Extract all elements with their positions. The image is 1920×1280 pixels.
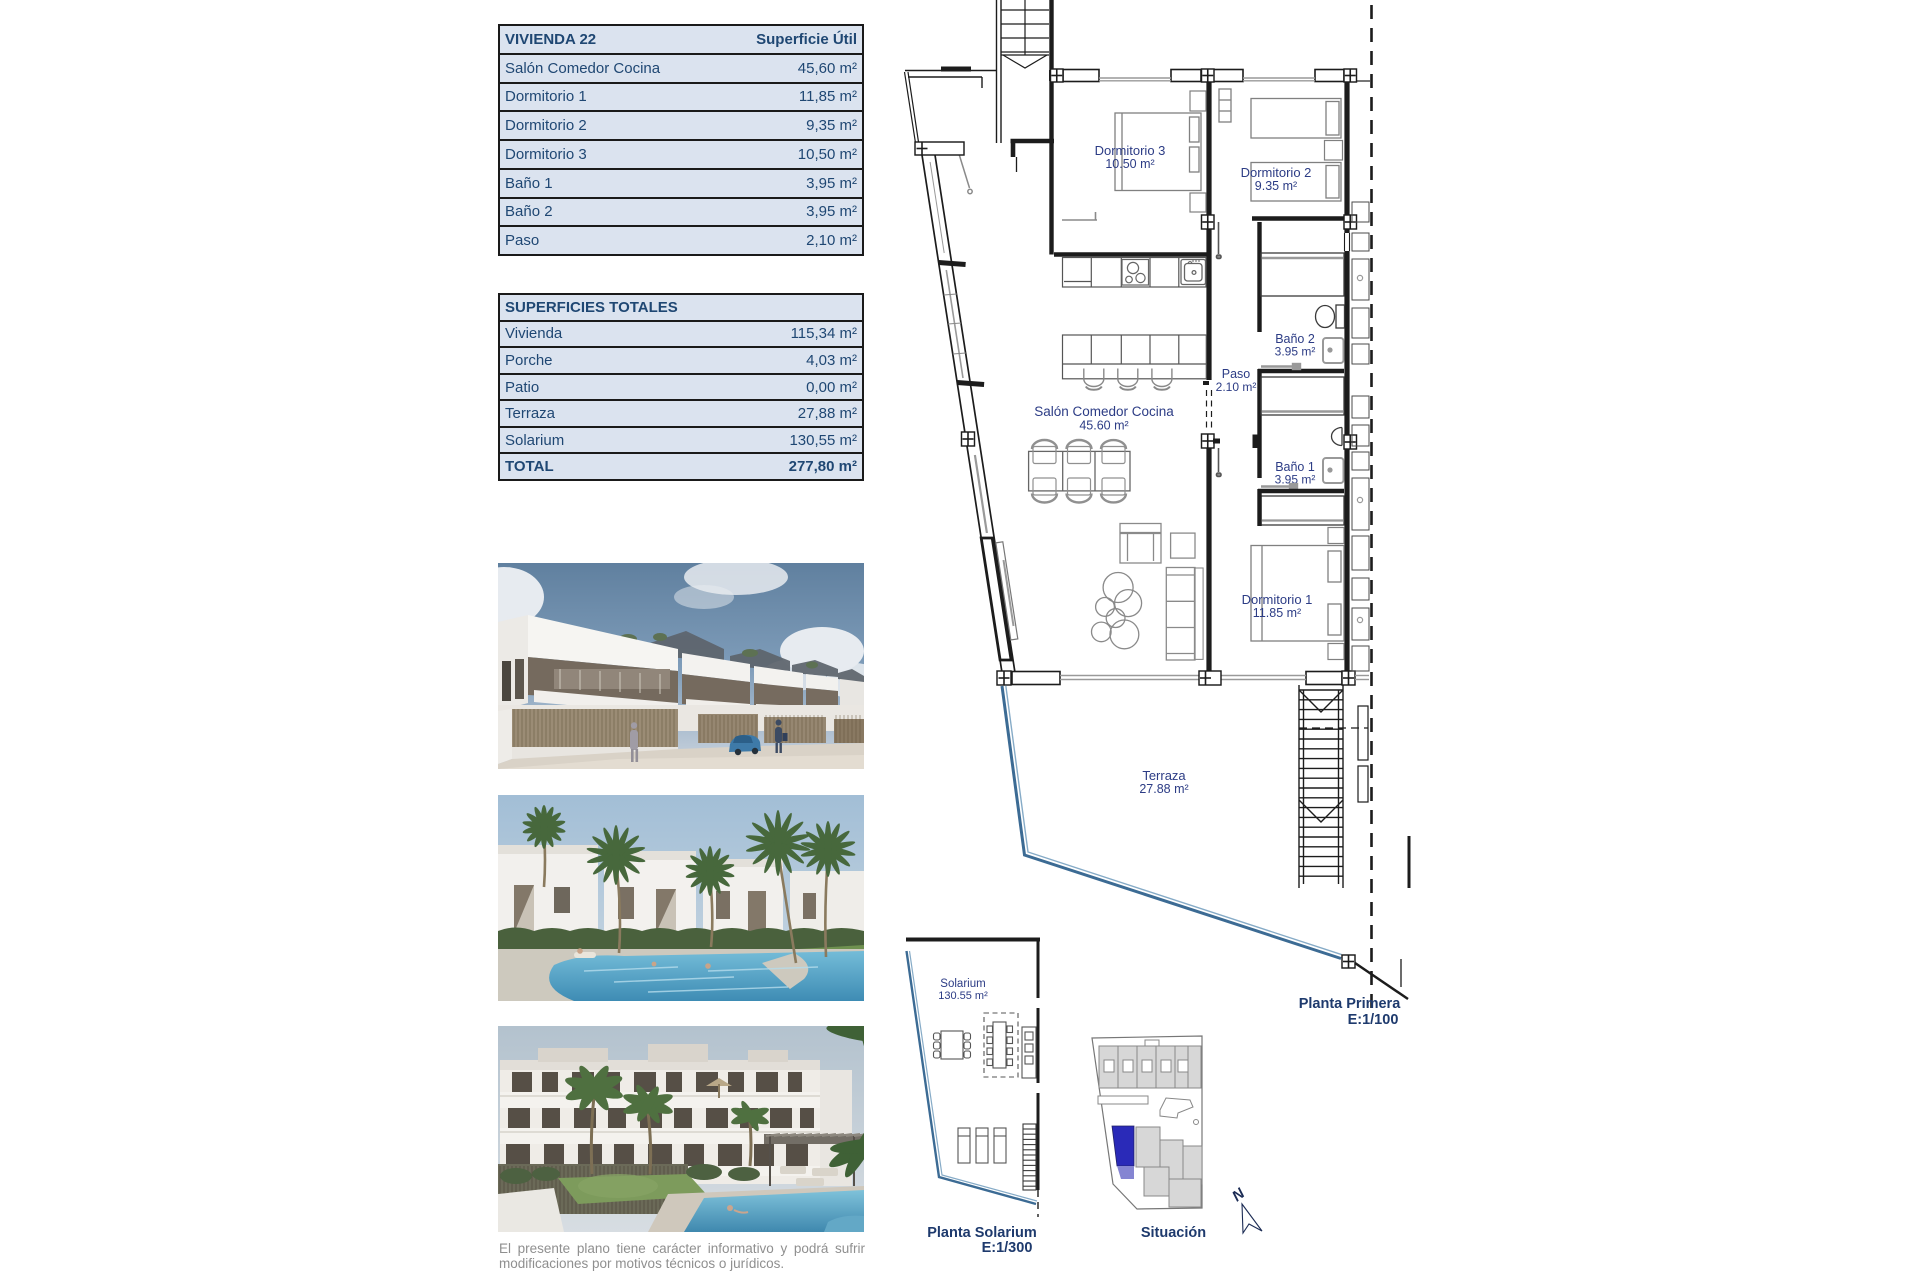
svg-text:2.10 m²: 2.10 m² <box>1216 380 1257 394</box>
svg-text:3.95 m²: 3.95 m² <box>1275 345 1316 359</box>
svg-text:N: N <box>1229 1184 1249 1205</box>
svg-text:Dormitorio 1: Dormitorio 1 <box>1242 592 1313 607</box>
svg-text:10.50 m²: 10.50 m² <box>1105 157 1154 171</box>
svg-text:Solarium: Solarium <box>940 978 985 990</box>
svg-text:Planta Primera: Planta Primera <box>1299 996 1401 1012</box>
svg-text:Situación: Situación <box>1141 1225 1206 1241</box>
svg-text:Dormitorio 3: Dormitorio 3 <box>1095 143 1166 158</box>
svg-text:Terraza: Terraza <box>1142 768 1186 783</box>
svg-text:Paso: Paso <box>1222 367 1251 381</box>
svg-text:130.55 m²: 130.55 m² <box>938 990 988 1002</box>
svg-text:Salón Comedor Cocina: Salón Comedor Cocina <box>1034 404 1174 419</box>
svg-text:Planta Solarium: Planta Solarium <box>927 1225 1037 1241</box>
svg-text:Dormitorio 2: Dormitorio 2 <box>1241 165 1312 180</box>
svg-text:E:1/300: E:1/300 <box>982 1240 1033 1256</box>
svg-text:11.85 m²: 11.85 m² <box>1253 606 1301 620</box>
svg-text:45.60 m²: 45.60 m² <box>1079 419 1128 433</box>
svg-text:27.88 m²: 27.88 m² <box>1139 782 1188 796</box>
svg-text:E:1/100: E:1/100 <box>1348 1012 1399 1028</box>
svg-text:9.35 m²: 9.35 m² <box>1255 179 1297 193</box>
